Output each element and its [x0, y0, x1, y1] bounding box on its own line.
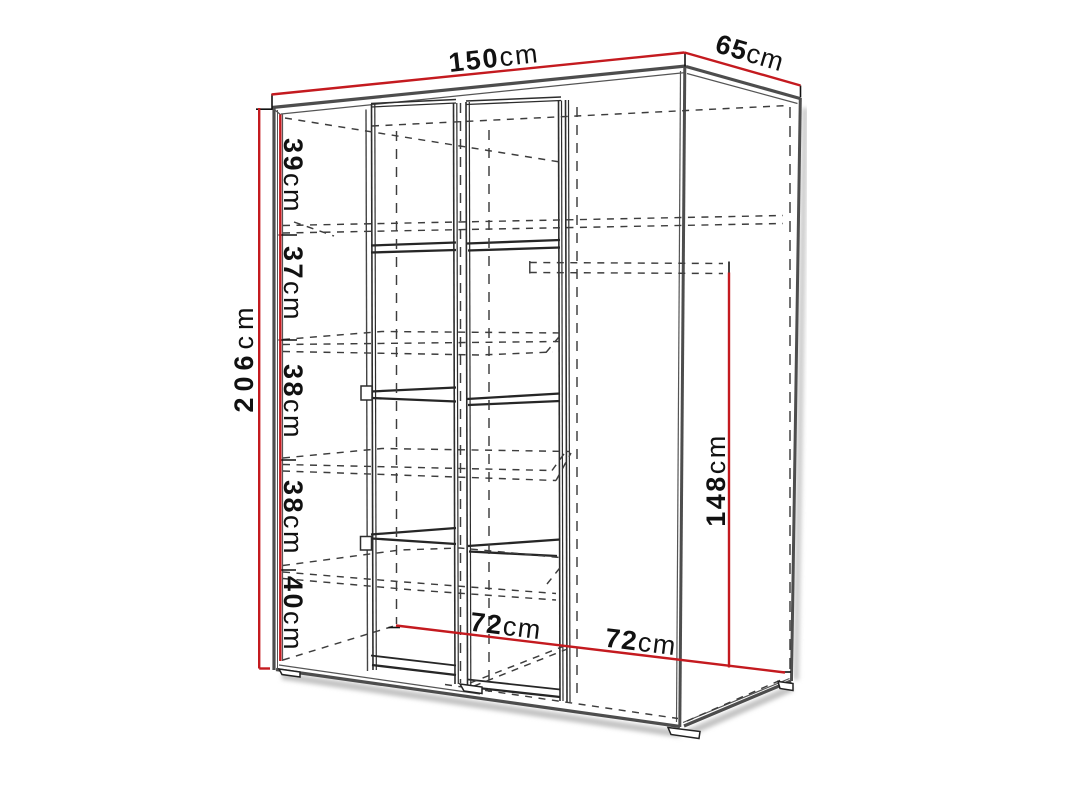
- svg-text:37cm: 37cm: [278, 246, 308, 322]
- svg-text:148cm: 148cm: [701, 433, 731, 527]
- svg-text:39cm: 39cm: [278, 138, 308, 214]
- svg-text:206cm: 206cm: [229, 301, 259, 412]
- svg-text:40cm: 40cm: [278, 576, 308, 652]
- svg-text:38cm: 38cm: [278, 364, 308, 440]
- svg-text:38cm: 38cm: [278, 480, 308, 556]
